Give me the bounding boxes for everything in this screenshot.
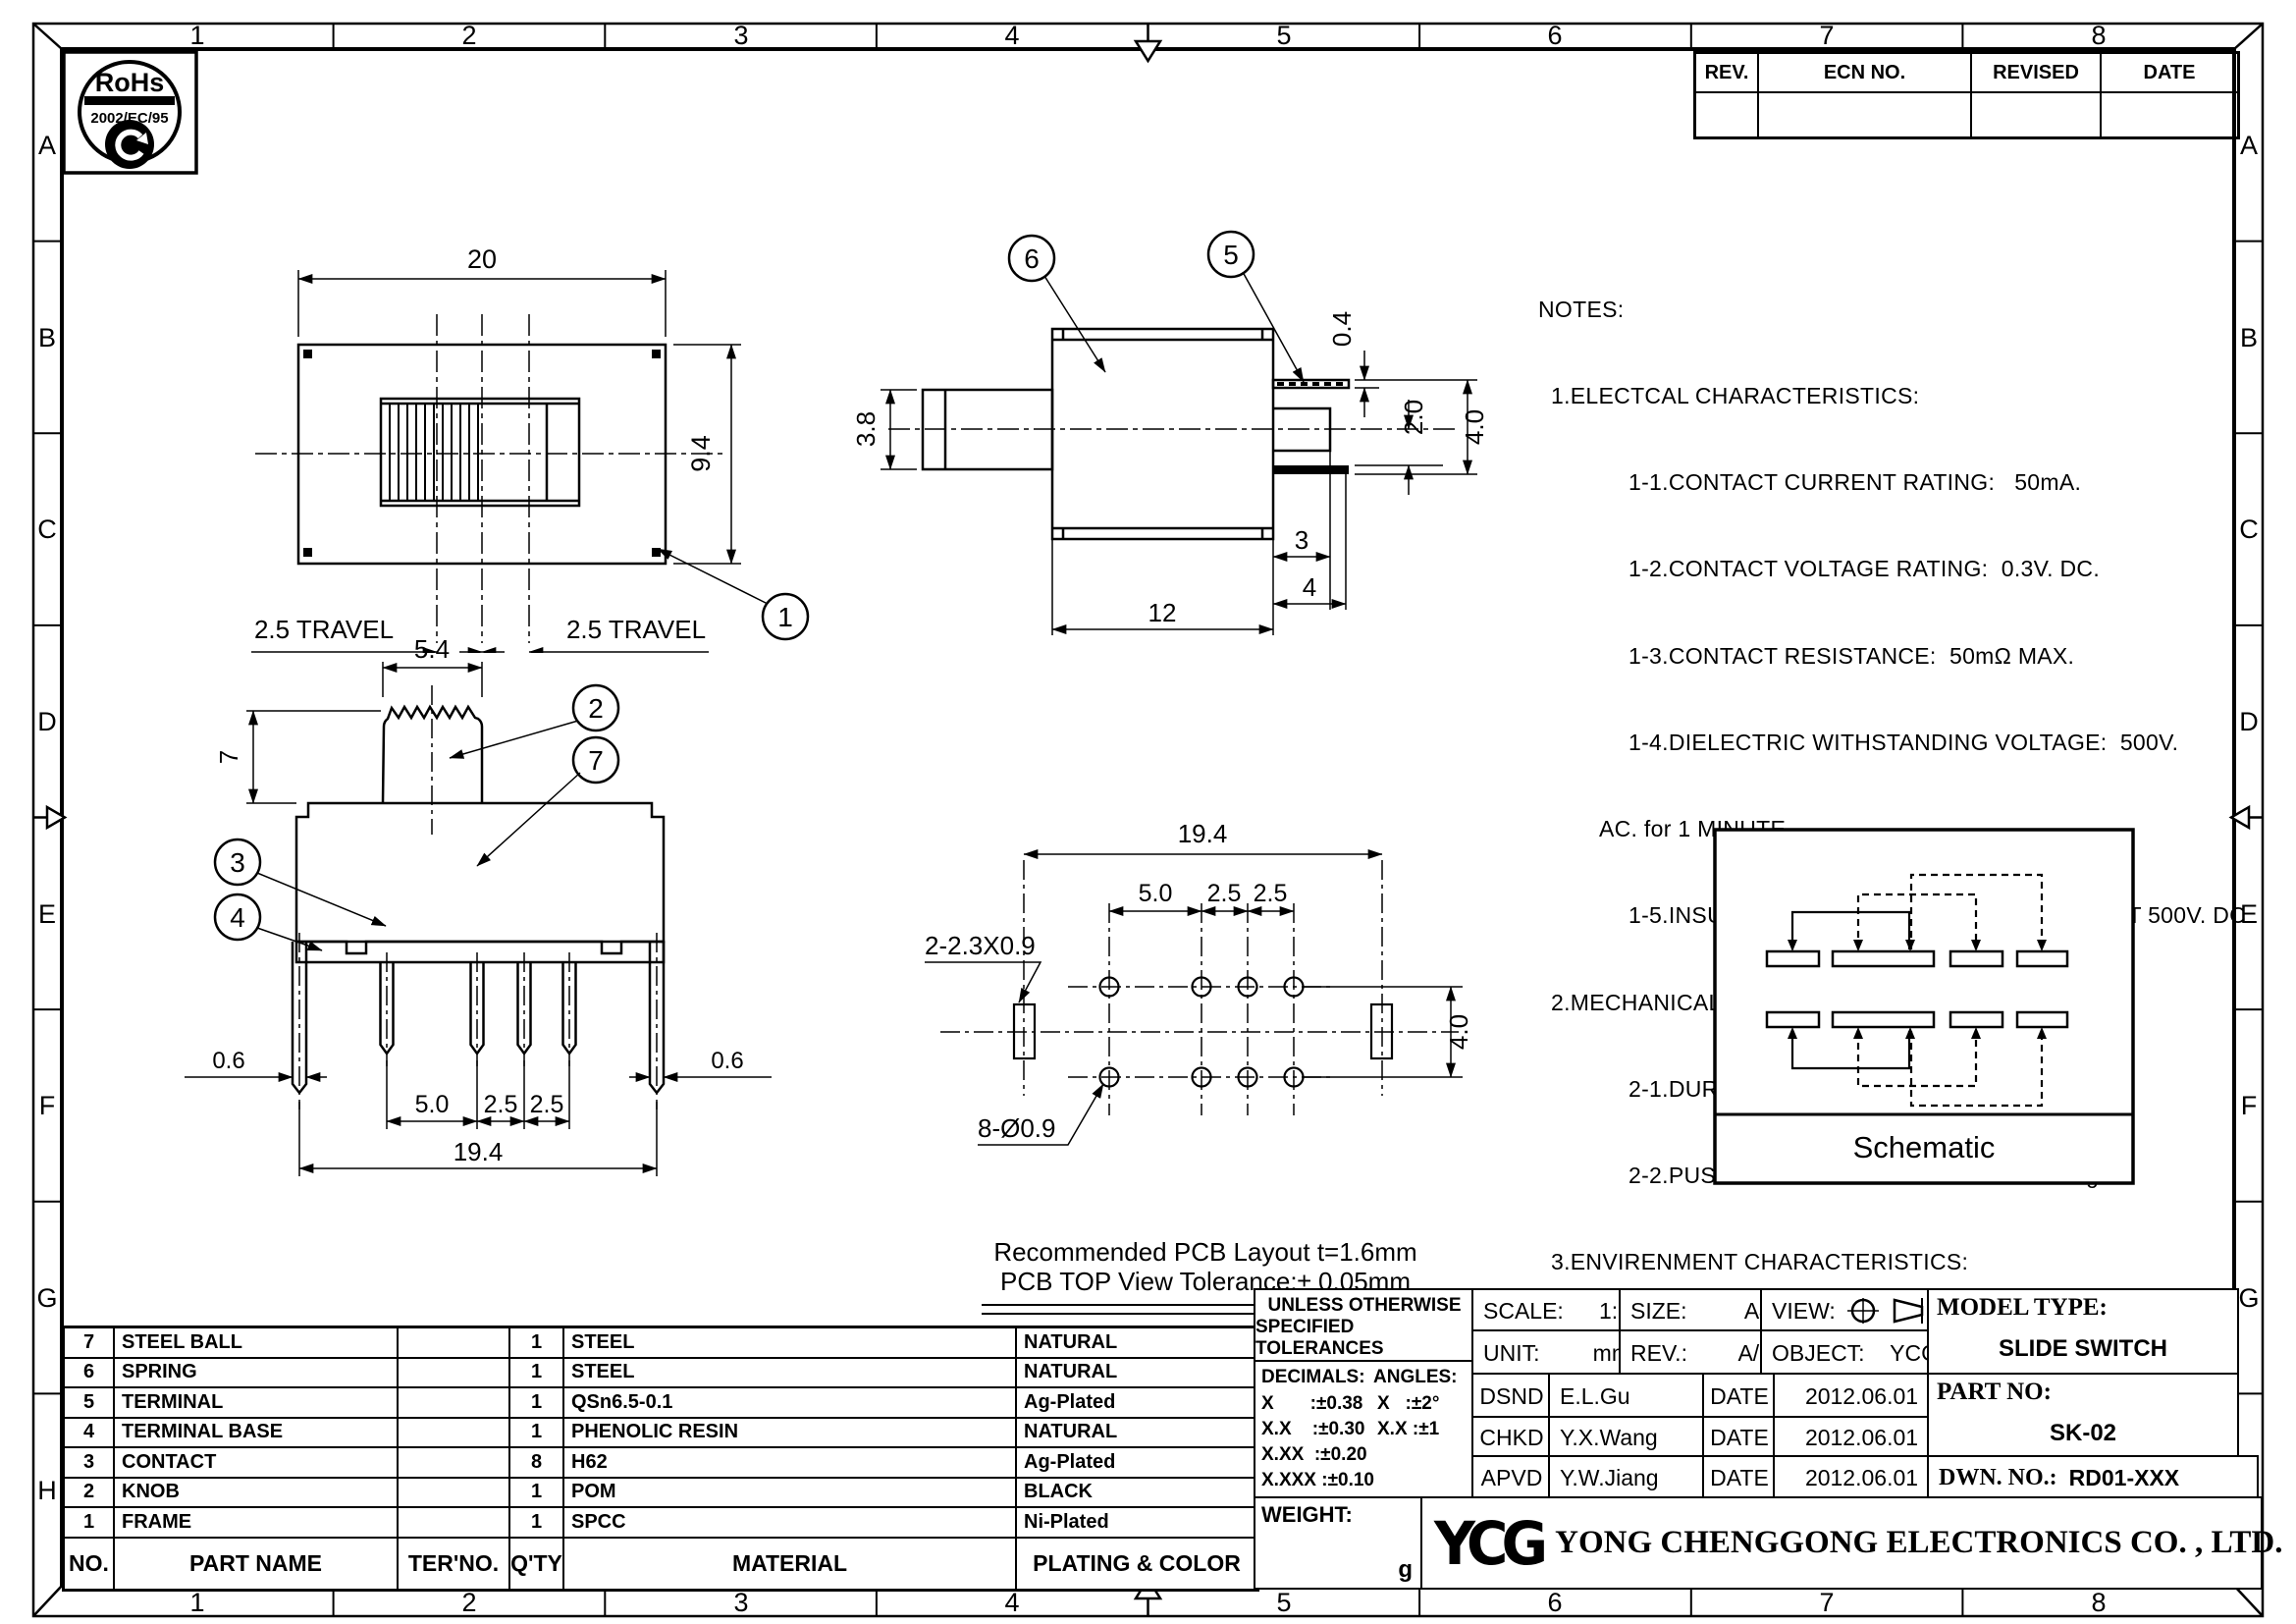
part-row-qty: 1 bbox=[510, 1388, 564, 1419]
border-row-label: C bbox=[2239, 514, 2259, 544]
projection-circle-icon bbox=[1845, 1295, 1881, 1326]
revision-empty-cell bbox=[2102, 93, 2237, 136]
size-label: SIZE: bbox=[1630, 1298, 1687, 1325]
pcb-layout-drawing: 19.4 5.0 2.5 2.5 4.0 2-2.3X0.9 8-Ø0.9 Re… bbox=[921, 813, 1490, 1333]
object-cell: OBJECT: YCG bbox=[1760, 1329, 1950, 1377]
dimension-lines bbox=[881, 272, 1477, 635]
case-outline bbox=[296, 803, 664, 942]
part-row-qty: 1 bbox=[510, 1479, 564, 1509]
object-label: OBJECT: bbox=[1772, 1340, 1865, 1367]
dim-t2: 2.0 bbox=[1399, 400, 1428, 435]
rev-label: REV.: bbox=[1630, 1340, 1687, 1367]
border-row-label: A bbox=[2240, 131, 2258, 160]
title-block: UNLESS OTHERWISE SPECIFIED TOLERANCES DE… bbox=[1254, 1288, 2235, 1586]
dim-lug-right: 0.6 bbox=[711, 1048, 743, 1074]
top-view-drawing: 1 20 9.4 2.5 TRAVEL 2.5 TRAVEL bbox=[167, 221, 815, 653]
part-row-plating: NATURAL bbox=[1017, 1359, 1256, 1389]
revision-header-rev: REV. bbox=[1696, 54, 1759, 93]
chkd-name-value: Y.X.Wang bbox=[1560, 1425, 1658, 1451]
dwn-no-label: DWN. NO.: bbox=[1939, 1465, 2057, 1491]
schematic-drawing: Schematic bbox=[1713, 828, 2135, 1185]
front-view-outline bbox=[293, 707, 664, 1093]
notes-line: 1-2.CONTACT VOLTAGE RATING: 0.3V. DC. bbox=[1538, 555, 2225, 583]
dim-knob-width: 5.4 bbox=[414, 634, 450, 664]
part-row-plating: BLACK bbox=[1017, 1479, 1256, 1509]
border-row-label: E bbox=[38, 899, 56, 929]
dsnd-role: DSND bbox=[1471, 1373, 1552, 1420]
part-row-plating: Ag-Plated bbox=[1017, 1448, 1256, 1479]
part-row-material: H62 bbox=[564, 1448, 1017, 1479]
dsnd-date-label: DATE bbox=[1702, 1373, 1777, 1420]
dsnd-name-value: E.L.Gu bbox=[1560, 1383, 1630, 1410]
revision-empty-cell bbox=[1759, 93, 1972, 136]
part-row-material: STEEL bbox=[564, 1328, 1017, 1359]
date-value: 2012.06.01 bbox=[1805, 1465, 1918, 1491]
part-row-ter bbox=[399, 1328, 510, 1359]
scale-label: SCALE: bbox=[1483, 1298, 1564, 1325]
part-no-cell: PART NO: SK-02 bbox=[1927, 1373, 2239, 1459]
part-row-no: 2 bbox=[65, 1479, 115, 1509]
dsnd-role-label: DSND bbox=[1479, 1383, 1543, 1410]
model-type-cell: MODEL TYPE: SLIDE SWITCH bbox=[1927, 1288, 2239, 1377]
chkd-role-label: CHKD bbox=[1479, 1425, 1543, 1451]
schematic-caption: Schematic bbox=[1853, 1130, 1996, 1164]
apvd-role: APVD bbox=[1471, 1455, 1552, 1500]
border-col-label: 6 bbox=[1547, 21, 1562, 50]
dim-pitch1: 5.0 bbox=[1139, 880, 1173, 907]
balloon-spring-number: 6 bbox=[1024, 244, 1040, 274]
part-row-ter bbox=[399, 1479, 510, 1509]
part-row-qty: 1 bbox=[510, 1359, 564, 1389]
part-row-no: 4 bbox=[65, 1419, 115, 1449]
angles-label: ANGLES: bbox=[1373, 1367, 1458, 1388]
base-outline bbox=[296, 942, 664, 962]
dim-knob-height: 7 bbox=[214, 750, 243, 764]
part-row-ter bbox=[399, 1388, 510, 1419]
apvd-role-label: APVD bbox=[1481, 1465, 1543, 1491]
part-row-ter bbox=[399, 1448, 510, 1479]
pin bbox=[471, 962, 484, 1054]
part-row-qty: 1 bbox=[510, 1328, 564, 1359]
balloon-base-number: 4 bbox=[230, 902, 245, 933]
part-row-qty: 1 bbox=[510, 1508, 564, 1539]
border-row-label: F bbox=[2241, 1091, 2258, 1120]
part-row-plating: Ag-Plated bbox=[1017, 1388, 1256, 1419]
dimension-lines bbox=[185, 662, 772, 1176]
date-value: 2012.06.01 bbox=[1805, 1383, 1918, 1410]
border-col-label: 5 bbox=[1276, 21, 1291, 50]
balloon-contact-number: 3 bbox=[230, 847, 245, 878]
tolerance-ang-row: X.X :±1 bbox=[1377, 1419, 1439, 1440]
part-no-label: PART NO: bbox=[1937, 1379, 2052, 1406]
tolerance-header-line1: UNLESS OTHERWISE bbox=[1267, 1295, 1461, 1317]
part-row-ter bbox=[399, 1419, 510, 1449]
rev-cell: REV.: A/0 bbox=[1619, 1329, 1784, 1377]
border-row-label: A bbox=[38, 131, 56, 160]
dim-term: 4 bbox=[1303, 572, 1316, 602]
pin bbox=[518, 962, 531, 1054]
date-label: DATE bbox=[1710, 1465, 1769, 1491]
company-cell: YCG YONG CHENGGONG ELECTRONICS CO. , LTD… bbox=[1420, 1496, 2263, 1590]
border-col-label: 5 bbox=[1276, 1588, 1291, 1617]
dim-pitch3: 2.5 bbox=[530, 1091, 564, 1118]
border-row-label: C bbox=[37, 514, 57, 544]
tolerance-ang-row: X :±2° bbox=[1377, 1393, 1439, 1415]
part-row-name: KNOB bbox=[115, 1479, 399, 1509]
part-row-name: CONTACT bbox=[115, 1448, 399, 1479]
part-row-material: POM bbox=[564, 1479, 1017, 1509]
dwn-no-value: RD01-XXX bbox=[2069, 1465, 2179, 1491]
border-col-label: 3 bbox=[733, 21, 748, 50]
part-row-qty: 1 bbox=[510, 1419, 564, 1449]
side-view-outline bbox=[923, 329, 1349, 539]
dsnd-name: E.L.Gu bbox=[1548, 1373, 1726, 1420]
chkd-date-value: 2012.06.01 bbox=[1773, 1416, 1950, 1459]
apvd-date-label: DATE bbox=[1702, 1455, 1777, 1500]
dim-span: 19.4 bbox=[1178, 819, 1228, 848]
revision-header-revised: REVISED bbox=[1972, 54, 2102, 93]
model-type-label: MODEL TYPE: bbox=[1937, 1294, 2108, 1322]
parts-header-material: MATERIAL bbox=[564, 1539, 1017, 1590]
parts-header-qty: Q'TY bbox=[510, 1539, 564, 1590]
part-row-name: TERMINAL BASE bbox=[115, 1419, 399, 1449]
border-row-label: G bbox=[36, 1283, 57, 1313]
tolerance-dec-row: X.X :±0.30 bbox=[1261, 1419, 1364, 1440]
projection-cone-icon bbox=[1891, 1296, 1928, 1326]
part-row-no: 7 bbox=[65, 1328, 115, 1359]
part-row-ter bbox=[399, 1508, 510, 1539]
tolerance-dec-row: X :±0.38 bbox=[1261, 1393, 1362, 1415]
apvd-name: Y.W.Jiang bbox=[1548, 1455, 1726, 1500]
part-row-no: 6 bbox=[65, 1359, 115, 1389]
part-row-name: FRAME bbox=[115, 1508, 399, 1539]
tolerance-values-box: DECIMALS: ANGLES: X :±0.38 X.X :±0.30 X.… bbox=[1254, 1360, 1475, 1502]
balloon-cover-number: 7 bbox=[588, 745, 604, 776]
apvd-date-value: 2012.06.01 bbox=[1773, 1455, 1950, 1500]
parts-header-ter: TER'NO. bbox=[399, 1539, 510, 1590]
date-label: DATE bbox=[1710, 1425, 1769, 1451]
front-view-drawing: 2 7 3 4 5.4 7 0.6 0.6 5.0 2.5 2.5 19.4 bbox=[145, 628, 793, 1193]
border-col-label: 1 bbox=[189, 21, 204, 50]
dim-t1: 0.4 bbox=[1327, 311, 1357, 347]
revision-header-ecn: ECN NO. bbox=[1759, 54, 1972, 93]
notes-line: 1-4.DIELECTRIC WITHSTANDING VOLTAGE: 500… bbox=[1538, 729, 2225, 757]
part-row-plating: NATURAL bbox=[1017, 1328, 1256, 1359]
tolerance-dec-row: X.XX :±0.20 bbox=[1261, 1444, 1367, 1466]
dim-pitch2: 2.5 bbox=[484, 1091, 518, 1118]
dim-span: 19.4 bbox=[454, 1137, 504, 1166]
border-row-label: B bbox=[38, 323, 56, 352]
balloon-knob-number: 2 bbox=[588, 693, 604, 724]
view-cell: VIEW: bbox=[1760, 1288, 1950, 1333]
dim-t3: 4.0 bbox=[1460, 409, 1489, 445]
part-row-no: 3 bbox=[65, 1448, 115, 1479]
dim-pitch3: 2.5 bbox=[1254, 880, 1288, 907]
centerlines bbox=[255, 314, 726, 643]
view-label: VIEW: bbox=[1772, 1298, 1836, 1325]
revision-header-date: DATE bbox=[2102, 54, 2237, 93]
knob-outline bbox=[381, 399, 579, 506]
part-row-material: QSn6.5-0.1 bbox=[564, 1388, 1017, 1419]
dim-pitch1: 5.0 bbox=[415, 1091, 450, 1118]
parts-table: 7 STEEL BALL 1 STEEL NATURAL 6 SPRING 1 … bbox=[62, 1326, 1259, 1592]
part-row-plating: NATURAL bbox=[1017, 1419, 1256, 1449]
border-col-label: 1 bbox=[189, 1588, 204, 1617]
part-no-value: SK-02 bbox=[1929, 1420, 2237, 1447]
rohs-title: RoHs bbox=[95, 68, 165, 97]
tolerance-header-box: UNLESS OTHERWISE SPECIFIED TOLERANCES bbox=[1254, 1288, 1475, 1366]
part-row-ter bbox=[399, 1359, 510, 1389]
chkd-name: Y.X.Wang bbox=[1548, 1416, 1726, 1459]
date-value: 2012.06.01 bbox=[1805, 1425, 1918, 1451]
weight-cell: WEIGHT: g bbox=[1254, 1496, 1424, 1590]
rohs-logo-icon: RoHs 2002/EC/95 bbox=[62, 50, 198, 175]
border-row-label: F bbox=[39, 1091, 56, 1120]
notes-line: 1-3.CONTACT RESISTANCE: 50mΩ MAX. bbox=[1538, 642, 2225, 671]
revision-empty-cell bbox=[1696, 93, 1759, 136]
part-row-name: TERMINAL bbox=[115, 1388, 399, 1419]
pin bbox=[563, 962, 576, 1054]
knob-ribs bbox=[390, 404, 478, 501]
part-row-name: STEEL BALL bbox=[115, 1328, 399, 1359]
border-col-label: 7 bbox=[1819, 1588, 1834, 1617]
border-row-label: D bbox=[2239, 707, 2259, 736]
dim-stem: 3.8 bbox=[851, 411, 881, 447]
dim-body: 12 bbox=[1148, 598, 1177, 627]
parts-header-no: NO. bbox=[65, 1539, 115, 1590]
unit-cell: UNIT: mm bbox=[1471, 1329, 1642, 1377]
slot-label: 2-2.3X0.9 bbox=[925, 931, 1036, 960]
hole-label: 8-Ø0.9 bbox=[978, 1113, 1056, 1143]
side-view-drawing: 6 5 3.8 0.4 2.0 4.0 3 4 12 bbox=[829, 182, 1517, 643]
part-row-name: SPRING bbox=[115, 1359, 399, 1389]
rohs-recycle-icon bbox=[105, 120, 154, 169]
border-col-label: 8 bbox=[2091, 1588, 2106, 1617]
part-row-qty: 8 bbox=[510, 1448, 564, 1479]
revision-empty-cell bbox=[1972, 93, 2102, 136]
tolerance-dec-row: X.XXX :±0.10 bbox=[1261, 1470, 1374, 1491]
date-label: DATE bbox=[1710, 1383, 1769, 1410]
unit-label: UNIT: bbox=[1483, 1340, 1540, 1367]
balloon-leader bbox=[1044, 276, 1105, 372]
border-row-label: B bbox=[2240, 323, 2258, 352]
drawing-sheet: 1 2 3 4 5 6 7 8 1 2 3 4 5 6 7 8 A B C D … bbox=[0, 0, 2296, 1624]
notes-line: 1.ELECTCAL CHARACTERISTICS: bbox=[1538, 382, 2225, 410]
weight-unit: g bbox=[1398, 1556, 1413, 1584]
parts-header-plating: PLATING & COLOR bbox=[1017, 1539, 1256, 1590]
border-row-label: H bbox=[37, 1476, 57, 1505]
notes-line: NOTES: bbox=[1538, 296, 2225, 324]
border-col-label: 2 bbox=[461, 21, 476, 50]
chkd-date-label: DATE bbox=[1702, 1416, 1777, 1459]
company-name: YONG CHENGGONG ELECTRONICS CO. , LTD. bbox=[1555, 1525, 2282, 1561]
border-col-label: 2 bbox=[461, 1588, 476, 1617]
dim-height: 9.4 bbox=[686, 435, 716, 472]
dim-pitch2: 2.5 bbox=[1207, 880, 1242, 907]
revision-table: REV. ECN NO. REVISED DATE bbox=[1693, 51, 2240, 139]
border-row-label: D bbox=[37, 707, 57, 736]
border-col-label: 6 bbox=[1547, 1588, 1562, 1617]
part-row-plating: Ni-Plated bbox=[1017, 1508, 1256, 1539]
border-col-label: 4 bbox=[1004, 21, 1019, 50]
model-type-value: SLIDE SWITCH bbox=[1929, 1335, 2237, 1363]
balloon-leader bbox=[477, 773, 580, 866]
border-row-label: G bbox=[2238, 1283, 2259, 1313]
weight-label: WEIGHT: bbox=[1261, 1502, 1353, 1528]
part-row-material: PHENOLIC RESIN bbox=[564, 1419, 1017, 1449]
balloon-leader bbox=[450, 721, 578, 758]
dim-rows: 4.0 bbox=[1444, 1014, 1473, 1050]
dim-width: 20 bbox=[467, 244, 497, 274]
pcb-caption-1: Recommended PCB Layout t=1.6mm bbox=[993, 1237, 1416, 1267]
decimals-label: DECIMALS: bbox=[1261, 1367, 1365, 1388]
part-row-material: STEEL bbox=[564, 1359, 1017, 1389]
border-col-label: 7 bbox=[1819, 21, 1834, 50]
border-col-label: 3 bbox=[733, 1588, 748, 1617]
pin bbox=[381, 962, 394, 1054]
border-col-label: 4 bbox=[1004, 1588, 1019, 1617]
chkd-role: CHKD bbox=[1471, 1416, 1552, 1459]
notes-line: 1-1.CONTACT CURRENT RATING: 50mA. bbox=[1538, 468, 2225, 497]
dwn-no-cell: DWN. NO.: RD01-XXX bbox=[1927, 1455, 2259, 1500]
part-row-material: SPCC bbox=[564, 1508, 1017, 1539]
part-row-no: 1 bbox=[65, 1508, 115, 1539]
balloon-leader bbox=[257, 928, 322, 950]
parts-header-name: PART NAME bbox=[115, 1539, 399, 1590]
balloon-leader bbox=[658, 549, 768, 604]
part-row-no: 5 bbox=[65, 1388, 115, 1419]
balloon-terminal-number: 5 bbox=[1223, 240, 1239, 270]
notes-line: 3.ENVIRENMENT CHARACTERISTICS: bbox=[1538, 1248, 2225, 1276]
scale-cell: SCALE: 1:1 bbox=[1471, 1288, 1642, 1333]
balloon-leader bbox=[257, 873, 386, 926]
apvd-name-value: Y.W.Jiang bbox=[1560, 1465, 1659, 1491]
dsnd-date-value: 2012.06.01 bbox=[1773, 1373, 1950, 1420]
terminal-bottom bbox=[1273, 465, 1349, 474]
dim-step: 3 bbox=[1295, 525, 1308, 555]
border-col-label: 8 bbox=[2091, 21, 2106, 50]
company-logo: YCG bbox=[1434, 1508, 1541, 1578]
dim-lug-left: 0.6 bbox=[212, 1048, 244, 1074]
size-cell: SIZE: A4 bbox=[1619, 1288, 1784, 1333]
tolerance-header-line2: SPECIFIED TOLERANCES bbox=[1255, 1317, 1473, 1360]
